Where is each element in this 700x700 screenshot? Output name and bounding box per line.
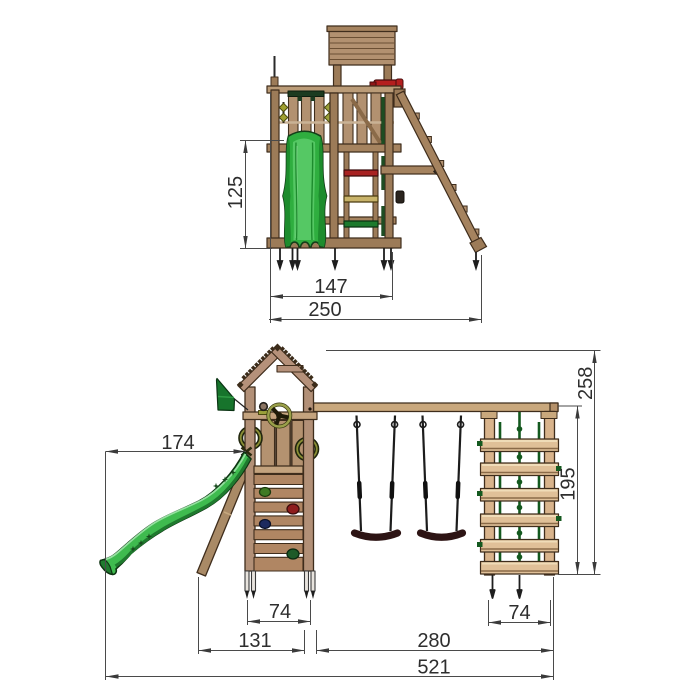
svg-text:174: 174 — [161, 432, 194, 454]
svg-text:280: 280 — [417, 630, 450, 652]
svg-text:147: 147 — [314, 276, 347, 298]
svg-text:521: 521 — [417, 657, 450, 679]
svg-text:125: 125 — [225, 176, 247, 209]
svg-text:258: 258 — [575, 367, 597, 400]
svg-text:74: 74 — [269, 601, 291, 623]
svg-text:250: 250 — [308, 299, 341, 321]
svg-text:131: 131 — [238, 630, 271, 652]
svg-text:74: 74 — [508, 602, 530, 624]
svg-text:195: 195 — [558, 467, 580, 500]
